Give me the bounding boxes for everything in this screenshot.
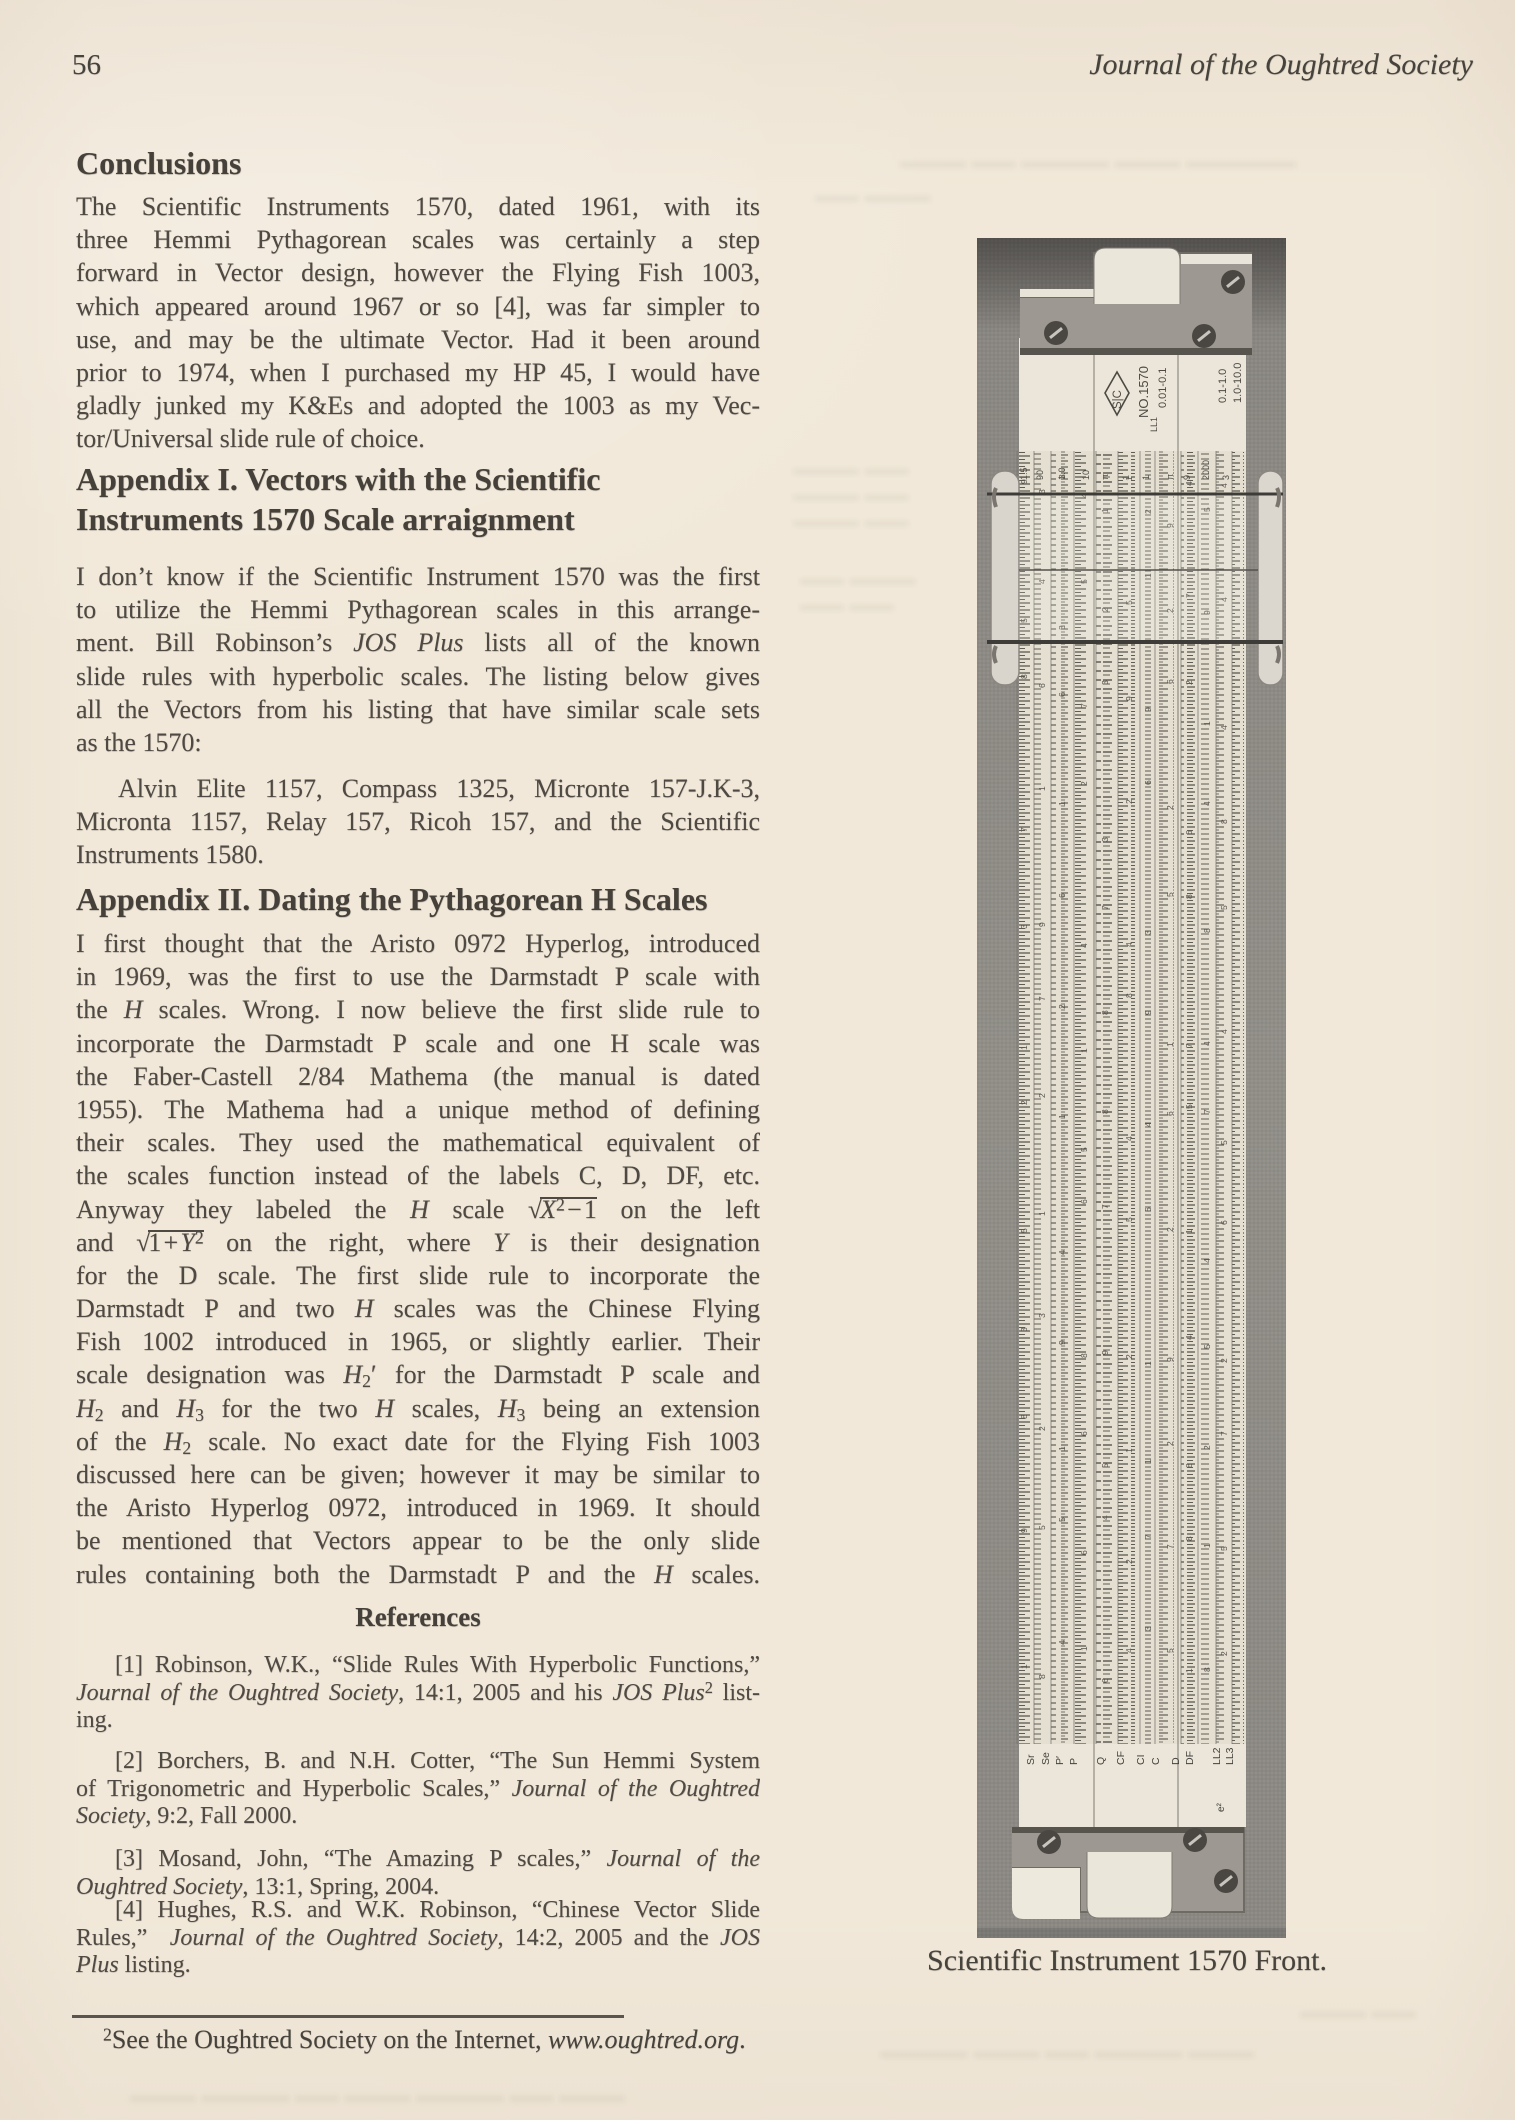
svg-text:CF: CF xyxy=(1115,1751,1127,1765)
svg-text:Q: Q xyxy=(1095,1757,1107,1765)
svg-text:LL1: LL1 xyxy=(1149,417,1159,432)
svg-text:Sr: Sr xyxy=(1025,1754,1037,1765)
svg-text:Se: Se xyxy=(1040,1752,1052,1765)
svg-text:e²: e² xyxy=(1216,1802,1227,1812)
svg-text:1.0-10.0: 1.0-10.0 xyxy=(1232,363,1244,403)
svg-text:LL2: LL2 xyxy=(1211,1747,1223,1765)
svg-text:CI: CI xyxy=(1135,1755,1147,1766)
svg-text:0.01-0.1: 0.01-0.1 xyxy=(1157,368,1169,408)
svg-text:0.1-1.0: 0.1-1.0 xyxy=(1217,369,1229,403)
svg-text:LL3: LL3 xyxy=(1224,1747,1236,1765)
svg-text:P′: P′ xyxy=(1054,1756,1066,1765)
svg-text:D: D xyxy=(1170,1757,1182,1765)
svg-text:C: C xyxy=(1150,1757,1162,1765)
svg-text:S|C: S|C xyxy=(1112,390,1124,409)
svg-text:NO.1570: NO.1570 xyxy=(1136,366,1151,418)
svg-text:P: P xyxy=(1068,1758,1080,1765)
svg-text:DF: DF xyxy=(1184,1751,1196,1765)
